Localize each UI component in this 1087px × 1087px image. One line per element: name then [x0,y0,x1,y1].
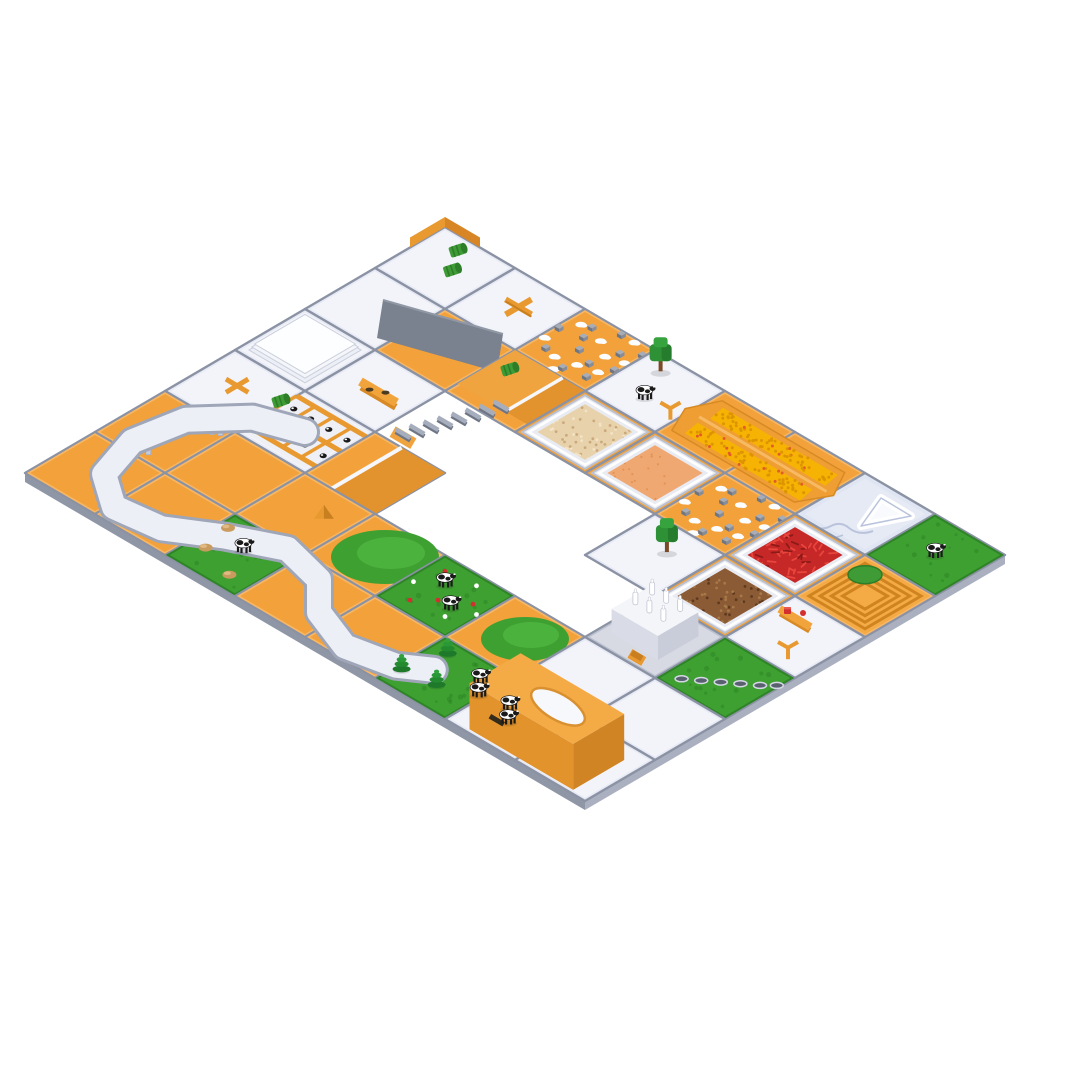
isometric-farm-board [0,0,1087,1087]
hay-pile-icon [222,571,236,579]
hay-pile-icon [199,544,213,552]
farm-board-illustration [0,0,1087,1087]
hay-pile-icon [221,524,235,532]
